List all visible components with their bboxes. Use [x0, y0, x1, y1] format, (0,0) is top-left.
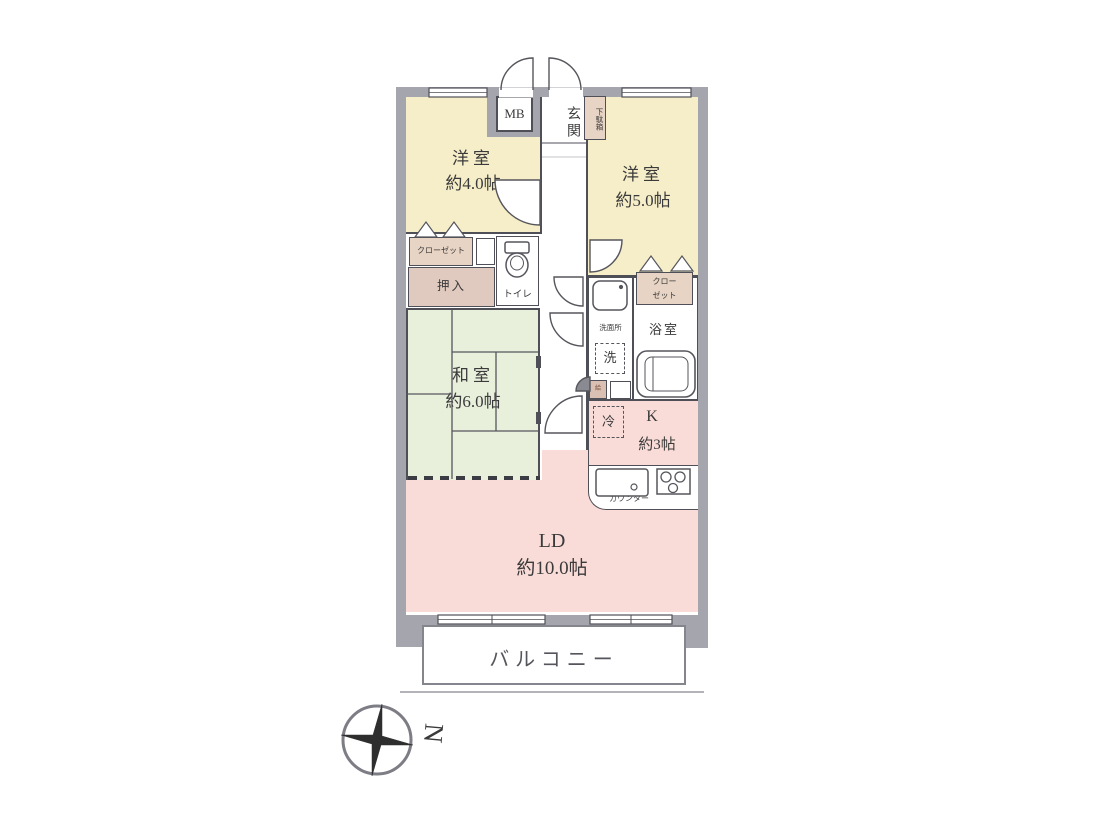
room-western-1-name: 洋室: [406, 146, 540, 171]
washroom-label: 洗面所: [589, 322, 632, 333]
room-japanese-size: 約6.0帖: [406, 389, 540, 415]
kitchen-counter: カウンター: [588, 465, 698, 510]
room-western-1-label: 洋室 約4.0帖: [406, 146, 540, 196]
washer-label: 洗: [603, 350, 616, 365]
hallway-ld-opening: [542, 450, 588, 482]
entrance-label: 玄関: [565, 106, 580, 140]
closet-right: クロー ゼット: [636, 272, 693, 305]
kitchen-name: K: [622, 408, 682, 426]
closet-left-label: クローゼット: [417, 246, 465, 255]
balcony: バルコニー: [422, 625, 686, 685]
water-heater-label: 給: [595, 386, 601, 392]
meter-box: MB: [496, 96, 533, 132]
shoe-box: 下駄箱: [584, 96, 606, 140]
compass-north-label: N: [418, 722, 450, 744]
room-ld-label: LD 約10.0帖: [420, 528, 684, 582]
compass-icon: N: [341, 704, 450, 776]
room-kitchen: 冷 K 約3帖: [588, 400, 698, 467]
washer-space: 洗: [595, 343, 625, 374]
kitchen-size: 約3帖: [607, 433, 707, 454]
room-japanese-label: 和室 約6.0帖: [406, 363, 540, 415]
closet-right-label-1: クロー: [637, 275, 692, 289]
room-ld-size: 約10.0帖: [420, 555, 684, 582]
closet-right-label-2: ゼット: [637, 289, 692, 303]
room-western-2-name: 洋室: [588, 162, 698, 188]
closet-left: クローゼット: [409, 237, 473, 266]
balcony-label: バルコニー: [424, 643, 684, 672]
room-japanese-name: 和室: [406, 363, 540, 389]
floor-plan: MB 玄関 下駄箱 クローゼット トイレ 押入 洗面所 洗 浴室 クロー ゼット…: [0, 0, 1100, 824]
meter-box-label: MB: [504, 106, 524, 121]
toilet-room: トイレ: [496, 236, 539, 306]
room-ld-name: LD: [420, 528, 684, 555]
room-western-1-size: 約4.0帖: [406, 171, 540, 196]
counter-label: カウンター: [599, 493, 659, 504]
hallway: [542, 97, 588, 450]
entrance-area: 玄関: [550, 99, 582, 147]
oshiire-label: 押入: [437, 279, 466, 293]
water-heater: 給: [589, 380, 607, 399]
oshiire: 押入: [408, 267, 495, 307]
storage-nook: [476, 238, 495, 265]
toilet-label: トイレ: [497, 286, 538, 300]
bathroom-label: 浴室: [636, 319, 692, 338]
shoe-box-label: 下駄箱: [595, 108, 604, 131]
refrigerator-label: 冷: [602, 414, 615, 429]
room-western-2-size: 約5.0帖: [588, 188, 698, 214]
utility-box: [610, 381, 631, 399]
room-western-2-label: 洋室 約5.0帖: [588, 162, 698, 214]
